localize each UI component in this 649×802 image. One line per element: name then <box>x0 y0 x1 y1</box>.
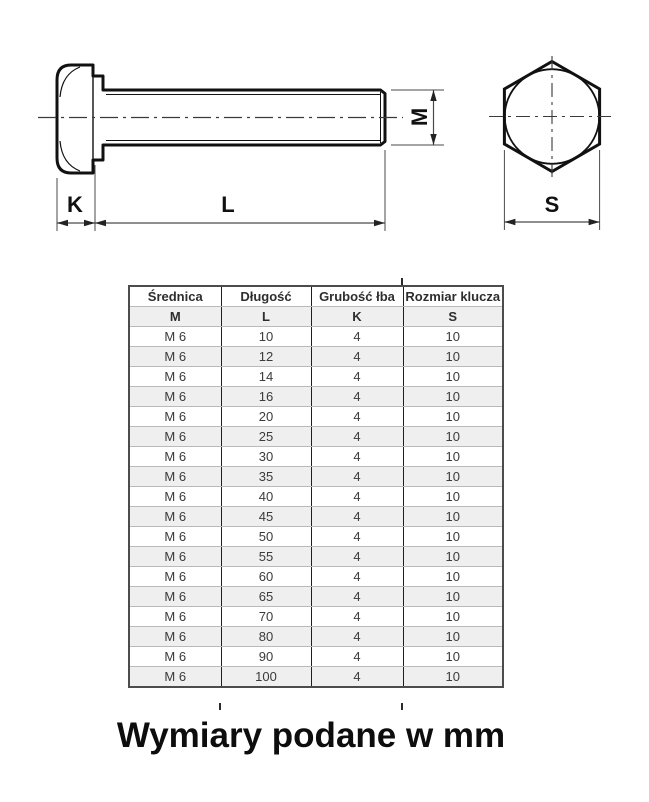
table-row: M 6100410 <box>129 667 503 688</box>
table-cell: 4 <box>311 447 403 467</box>
table-cell: M 6 <box>129 427 221 447</box>
table-cell: M 6 <box>129 467 221 487</box>
table-cell: 4 <box>311 467 403 487</box>
table-cell: 4 <box>311 387 403 407</box>
bolt-spec-table: Średnica Długość Grubość łba Rozmiar klu… <box>128 285 504 688</box>
table-header-row: Średnica Długość Grubość łba Rozmiar klu… <box>129 286 503 307</box>
column-header-length: Długość <box>221 286 311 307</box>
table-cell: 30 <box>221 447 311 467</box>
table-row: M 690410 <box>129 647 503 667</box>
table-cell: 10 <box>403 367 503 387</box>
table-cell: 10 <box>403 647 503 667</box>
table-cell: 20 <box>221 407 311 427</box>
arrowhead-left <box>504 219 515 225</box>
table-row: M 640410 <box>129 487 503 507</box>
table-row: M 645410 <box>129 507 503 527</box>
table-cell: 4 <box>311 607 403 627</box>
table-cell: 4 <box>311 347 403 367</box>
table-row: M 660410 <box>129 567 503 587</box>
table-cell: 12 <box>221 347 311 367</box>
table-cell: M 6 <box>129 327 221 347</box>
table-row: M 616410 <box>129 387 503 407</box>
table-cell: M 6 <box>129 627 221 647</box>
table-cell: 10 <box>403 627 503 647</box>
table-cell: 25 <box>221 427 311 447</box>
table-cell: 10 <box>403 507 503 527</box>
table-cell: 45 <box>221 507 311 527</box>
table-cell: 4 <box>311 587 403 607</box>
table-cell: M 6 <box>129 387 221 407</box>
table-cell: 4 <box>311 367 403 387</box>
table-cell: 35 <box>221 467 311 487</box>
table-cell: M 6 <box>129 507 221 527</box>
table-cell: 4 <box>311 667 403 688</box>
table-body: M 610410M 612410M 614410M 616410M 620410… <box>129 327 503 688</box>
bolt-side-view <box>38 65 403 173</box>
bolt-drawing-svg <box>0 0 649 260</box>
arrowhead-bottom <box>430 134 436 145</box>
grid-tick <box>401 278 403 285</box>
table-cell: 40 <box>221 487 311 507</box>
table-cell: 4 <box>311 567 403 587</box>
table-cell: M 6 <box>129 347 221 367</box>
table-cell: 10 <box>403 567 503 587</box>
table-row: M 670410 <box>129 607 503 627</box>
table-cell: M 6 <box>129 587 221 607</box>
arrowhead-left <box>57 220 68 226</box>
table-row: M 665410 <box>129 587 503 607</box>
table-cell: 10 <box>403 387 503 407</box>
bolt-silhouette <box>57 65 385 173</box>
table-symbol-row: M L K S <box>129 307 503 327</box>
l-dimension-label: L <box>208 191 248 219</box>
table-cell: 60 <box>221 567 311 587</box>
grid-tick <box>401 703 403 710</box>
table-cell: 16 <box>221 387 311 407</box>
table-cell: 4 <box>311 627 403 647</box>
table-row: M 680410 <box>129 627 503 647</box>
table-row: M 610410 <box>129 327 503 347</box>
table-cell: 10 <box>403 607 503 627</box>
bolt-technical-drawing: K L M S <box>0 0 649 260</box>
table-cell: 65 <box>221 587 311 607</box>
arrowhead-left <box>95 220 106 226</box>
table-cell: M 6 <box>129 527 221 547</box>
table-cell: 50 <box>221 527 311 547</box>
table-cell: 10 <box>403 487 503 507</box>
column-header-head-thickness: Grubość łba <box>311 286 403 307</box>
table-row: M 612410 <box>129 347 503 367</box>
table-cell: M 6 <box>129 647 221 667</box>
table-cell: M 6 <box>129 607 221 627</box>
arrowhead-top <box>430 90 436 101</box>
units-caption: Wymiary podane w mm <box>0 716 622 756</box>
table-cell: 100 <box>221 667 311 688</box>
table-cell: 10 <box>403 527 503 547</box>
table-cell: 4 <box>311 487 403 507</box>
symbol-k: K <box>311 307 403 327</box>
table-cell: 4 <box>311 427 403 447</box>
table-cell: 10 <box>403 587 503 607</box>
table-cell: 10 <box>221 327 311 347</box>
table-cell: 10 <box>403 547 503 567</box>
table-cell: M 6 <box>129 547 221 567</box>
table-cell: M 6 <box>129 487 221 507</box>
table-cell: M 6 <box>129 367 221 387</box>
m-dimension-label: M <box>406 102 434 132</box>
table-cell: 14 <box>221 367 311 387</box>
table-cell: M 6 <box>129 447 221 467</box>
table-cell: 10 <box>403 347 503 367</box>
table-cell: M 6 <box>129 407 221 427</box>
column-header-wrench-size: Rozmiar klucza <box>403 286 503 307</box>
table-row: M 630410 <box>129 447 503 467</box>
table-cell: M 6 <box>129 567 221 587</box>
grid-tick <box>219 703 221 710</box>
arrowhead-right <box>374 220 385 226</box>
arrowhead-right <box>589 219 600 225</box>
symbol-l: L <box>221 307 311 327</box>
table-cell: 4 <box>311 327 403 347</box>
column-header-diameter: Średnica <box>129 286 221 307</box>
table-cell: 4 <box>311 527 403 547</box>
table-cell: 10 <box>403 427 503 447</box>
table-cell: 10 <box>403 407 503 427</box>
table-cell: 10 <box>403 467 503 487</box>
table-cell: 10 <box>403 667 503 688</box>
table-cell: 90 <box>221 647 311 667</box>
table-row: M 650410 <box>129 527 503 547</box>
table-cell: 4 <box>311 547 403 567</box>
bolt-front-view <box>489 56 614 177</box>
table-cell: 4 <box>311 407 403 427</box>
table-cell: M 6 <box>129 667 221 688</box>
symbol-m: M <box>129 307 221 327</box>
k-dimension-label: K <box>60 191 90 219</box>
table-cell: 10 <box>403 327 503 347</box>
table-cell: 80 <box>221 627 311 647</box>
table-row: M 655410 <box>129 547 503 567</box>
table-cell: 10 <box>403 447 503 467</box>
table-cell: 4 <box>311 647 403 667</box>
symbol-s: S <box>403 307 503 327</box>
table-header: Średnica Długość Grubość łba Rozmiar klu… <box>129 286 503 327</box>
table-row: M 625410 <box>129 427 503 447</box>
table-cell: 55 <box>221 547 311 567</box>
table-row: M 635410 <box>129 467 503 487</box>
arrowhead-right <box>84 220 95 226</box>
s-dimension-label: S <box>537 191 567 219</box>
table-cell: 4 <box>311 507 403 527</box>
table-row: M 620410 <box>129 407 503 427</box>
table-cell: 70 <box>221 607 311 627</box>
table-row: M 614410 <box>129 367 503 387</box>
